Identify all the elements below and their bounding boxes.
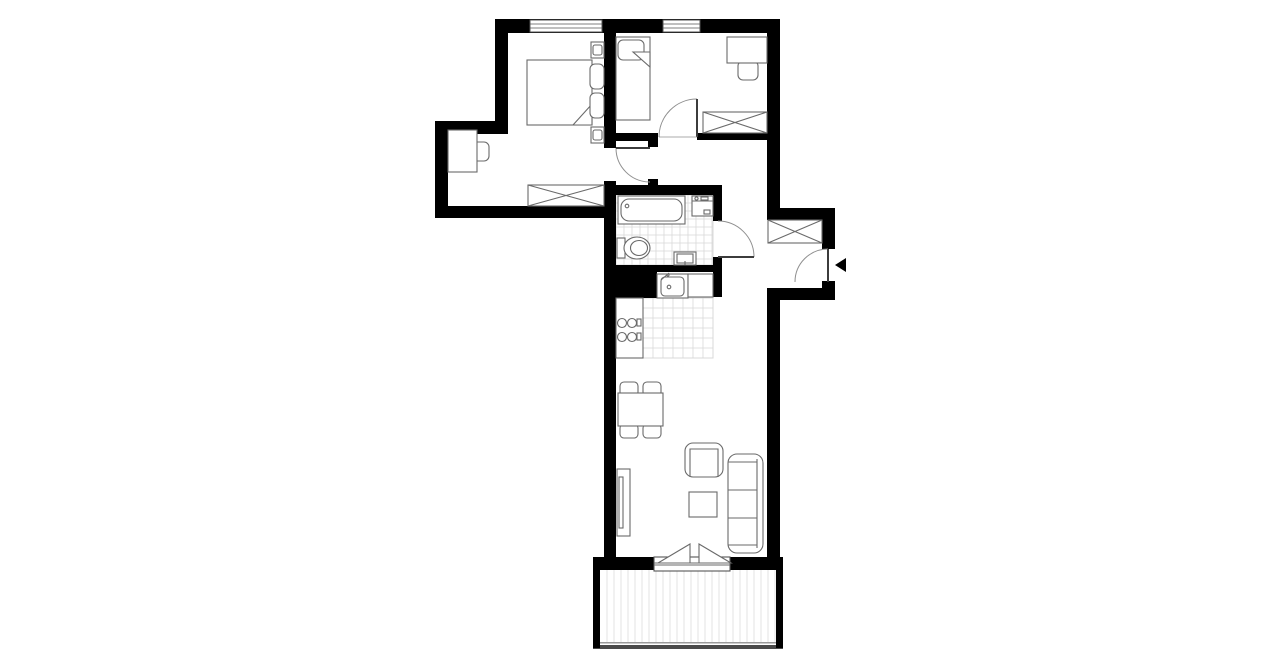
stove xyxy=(616,298,643,358)
right-wall-upper xyxy=(767,19,780,220)
floor-plan-canvas xyxy=(0,0,1280,667)
sofa xyxy=(728,454,763,553)
balcony-left-wall xyxy=(593,570,600,648)
bedroom2-door xyxy=(659,99,697,137)
bedroom1-left-wall-upper xyxy=(495,19,508,121)
bathroom-top-wall xyxy=(616,185,722,195)
bedroom2-doorstop-nub xyxy=(648,140,658,147)
core-left-wall xyxy=(604,181,616,570)
bedroom-divider-wall xyxy=(604,33,616,148)
bedroom2-bed xyxy=(616,37,650,120)
bathroom-door xyxy=(718,221,754,257)
living-bottom-wall-left xyxy=(593,557,654,570)
entry-right-wall-upper xyxy=(822,220,835,249)
bathtub xyxy=(618,196,685,224)
balcony-door xyxy=(654,544,731,571)
entry-step-wall xyxy=(767,208,835,220)
bedroom1-window xyxy=(530,20,602,32)
bedroom1-desk xyxy=(448,130,477,172)
bedroom2-desk xyxy=(727,37,767,63)
bedroom1-door xyxy=(616,148,650,182)
washing-machine xyxy=(692,196,713,216)
coffee-table xyxy=(689,492,717,517)
living-bottom-wall-right xyxy=(730,557,783,570)
bedroom2-desk-chair xyxy=(738,61,758,80)
kitchen-floor xyxy=(643,298,713,358)
toilet xyxy=(617,237,650,259)
armchair xyxy=(685,443,723,477)
entrance-door xyxy=(795,249,828,282)
balcony-rail-line xyxy=(593,642,783,644)
bedroom1-bottom-wall xyxy=(435,206,616,218)
bedroom2-window xyxy=(663,20,700,32)
floor-plan-page xyxy=(0,0,1280,667)
kitchen-shaft xyxy=(604,272,657,298)
entry-wardrobe xyxy=(768,220,822,243)
balcony-rail xyxy=(593,645,783,649)
right-wall-lower xyxy=(767,288,780,570)
bedroom1-wardrobe xyxy=(528,185,604,206)
bedroom2-bottom-wall-left xyxy=(616,133,658,141)
bedroom2-bottom-wall-right xyxy=(697,133,767,140)
bedroom1-left-wall-lower xyxy=(435,121,448,218)
kitchen-sink xyxy=(657,273,688,298)
bathroom-bottom-wall xyxy=(604,265,722,272)
balcony-deck xyxy=(593,570,783,649)
bathroom-sink xyxy=(674,252,696,265)
dining-table xyxy=(618,393,663,426)
bedroom1-bed xyxy=(527,60,604,125)
kitchen-counter xyxy=(688,274,713,297)
bedroom2-wardrobe xyxy=(703,112,767,133)
bedroom1-nightstand-bottom xyxy=(591,127,604,143)
kitchen-right-wall xyxy=(713,272,722,297)
tv-cabinet xyxy=(617,469,630,536)
bathroom-right-wall-upper xyxy=(713,195,722,221)
entrance-arrow xyxy=(835,258,846,272)
balcony-right-wall xyxy=(776,570,783,648)
bedroom1-nightstand-top xyxy=(591,42,604,58)
